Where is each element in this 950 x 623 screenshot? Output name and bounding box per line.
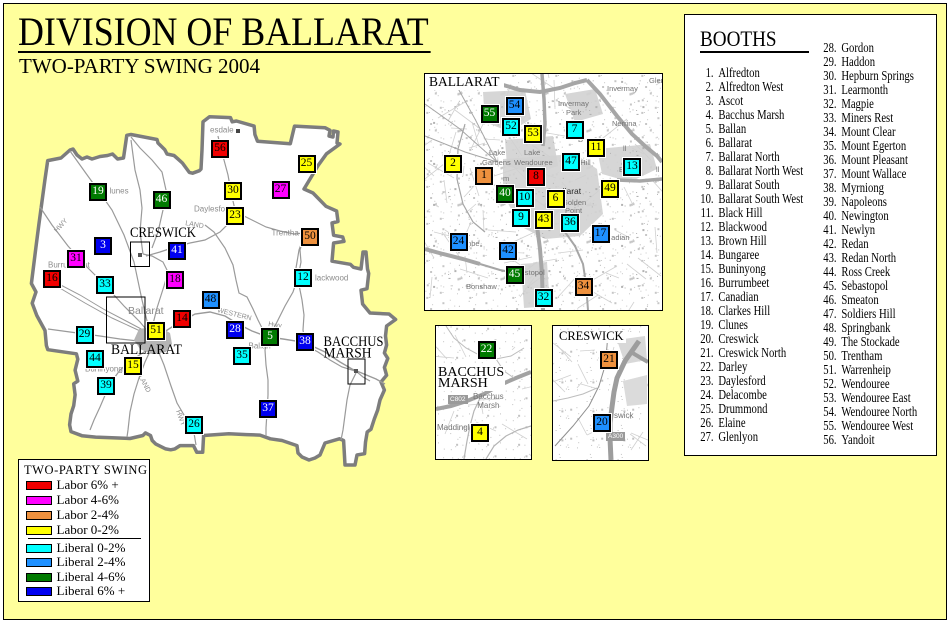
svg-text:Bonshaw: Bonshaw xyxy=(466,282,497,291)
svg-text:ll: ll xyxy=(623,144,627,153)
svg-text:nadian: nadian xyxy=(607,233,630,242)
svg-text:Wendouree: Wendouree xyxy=(514,158,553,167)
svg-text:Trentha: Trentha xyxy=(272,229,300,238)
svg-text:Lake: Lake xyxy=(524,148,540,157)
svg-text:Nerrina: Nerrina xyxy=(612,119,637,128)
svg-text:Park: Park xyxy=(566,108,582,117)
svg-text:BALLARAT: BALLARAT xyxy=(111,342,182,358)
svg-text:lunes: lunes xyxy=(110,187,129,196)
svg-text:Invermay: Invermay xyxy=(558,99,589,108)
svg-text:esdale: esdale xyxy=(210,126,234,135)
svg-text:CRESWICK: CRESWICK xyxy=(130,225,196,241)
svg-text:sstopol: sstopol xyxy=(521,268,545,277)
svg-text:Invermay: Invermay xyxy=(607,84,638,93)
svg-text:Ballarat: Ballarat xyxy=(128,305,164,317)
svg-text:Glen: Glen xyxy=(649,76,662,85)
svg-text:Daylesfor: Daylesfor xyxy=(194,205,228,214)
svg-text:m: m xyxy=(503,174,509,183)
svg-text:lackwood: lackwood xyxy=(315,274,348,283)
svg-text:ll: ll xyxy=(656,165,660,174)
svg-text:Lake: Lake xyxy=(489,148,505,157)
